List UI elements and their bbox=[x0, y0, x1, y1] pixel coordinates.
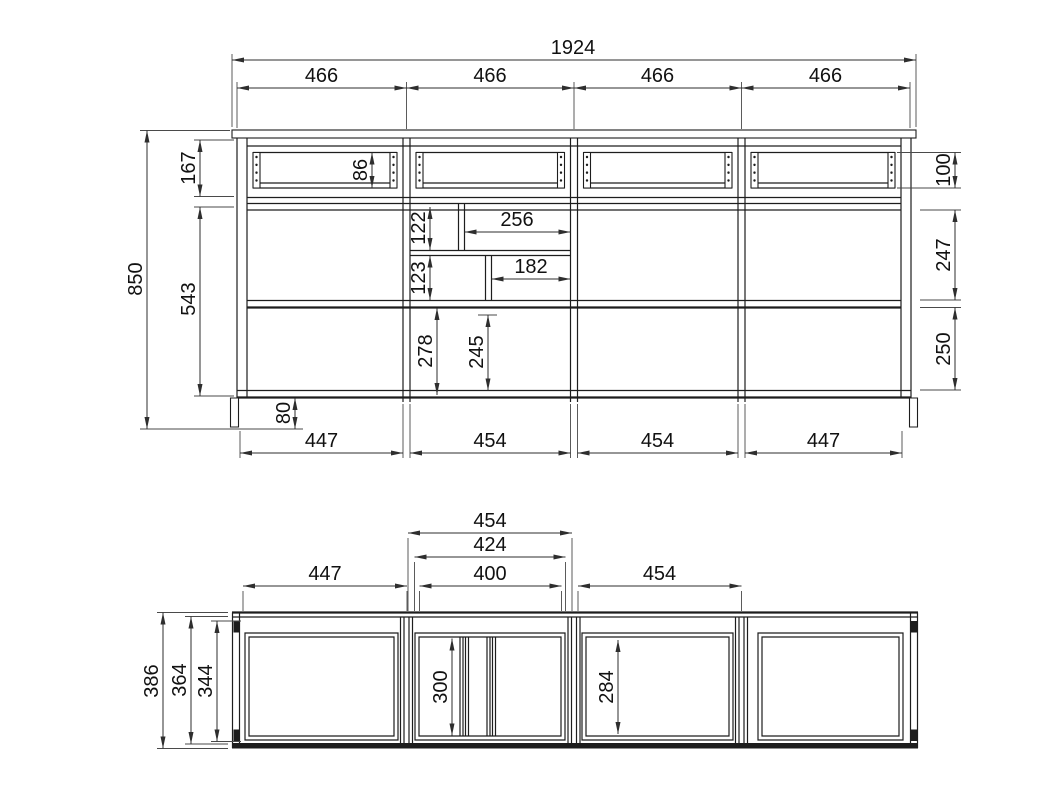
dim-label-niche-mid-width: 182 bbox=[514, 256, 547, 278]
dim-middle-compartment-height: 247 bbox=[920, 210, 961, 300]
dim-lower-niche-outer: 278 bbox=[415, 308, 437, 395]
dim-label-niche-top-height: 122 bbox=[408, 211, 430, 244]
dim-label-section-1: 466 bbox=[305, 65, 338, 87]
dim-label-module-width: 454 bbox=[473, 510, 506, 532]
dim-label-left-module-width: 447 bbox=[308, 563, 341, 585]
dim-label-drawer-depth-right: 284 bbox=[596, 670, 618, 703]
front-dimensions: 1924 466 466 466 466 850 1 bbox=[125, 37, 961, 458]
dim-niche-mid-width: 182 bbox=[492, 256, 571, 279]
dim-top-row-height: 167 bbox=[178, 140, 234, 197]
dim-label-frame-inner-width: 400 bbox=[473, 563, 506, 585]
dim-niche-mid-height: 123 bbox=[408, 256, 430, 301]
dim-label-niche-mid-height: 123 bbox=[408, 261, 430, 294]
front-view: 1924 466 466 466 466 850 1 bbox=[125, 37, 961, 458]
dim-niche-top-width: 256 bbox=[465, 209, 571, 232]
dim-label-drawer-depth-left: 300 bbox=[430, 670, 452, 703]
dim-frame-inner-width: 400 bbox=[420, 563, 562, 611]
dim-label-drawer-box-height: 86 bbox=[350, 159, 372, 181]
dim-label-bottom-4: 447 bbox=[807, 430, 840, 452]
cabinet-technical-drawing: 1924 466 466 466 466 850 1 bbox=[0, 0, 1061, 795]
dim-carcass-height: 543 bbox=[178, 207, 234, 396]
dim-label-top-row-height: 167 bbox=[178, 151, 200, 184]
technical-drawing-page: 1924 466 466 466 466 850 1 bbox=[0, 0, 1061, 795]
dim-left-module-width: 447 bbox=[243, 563, 407, 611]
dim-label-interior-depth: 344 bbox=[195, 664, 217, 697]
dim-lower-niche-inner: 245 bbox=[466, 315, 497, 391]
dim-label-bottom-3: 454 bbox=[641, 430, 674, 452]
dim-interior-depth: 344 bbox=[195, 621, 241, 742]
dim-label-carcass-depth: 364 bbox=[169, 663, 191, 696]
dim-label-overall-width: 1924 bbox=[551, 37, 596, 59]
plan-dimensions: 454 424 400 447 454 bbox=[141, 510, 742, 749]
dim-label-niche-top-width: 256 bbox=[500, 209, 533, 231]
dim-niche-top-height: 122 bbox=[408, 207, 430, 250]
dim-label-lower-niche-inner: 245 bbox=[466, 335, 488, 368]
legs bbox=[231, 398, 918, 427]
plan-corner-blocks bbox=[234, 621, 918, 741]
dim-label-lower-compartment: 250 bbox=[933, 332, 955, 365]
front-carcass bbox=[231, 130, 918, 427]
dim-overall-height: 850 bbox=[125, 131, 303, 430]
dim-label-drawer-front-height: 100 bbox=[933, 153, 955, 186]
top-panel bbox=[232, 130, 916, 138]
dim-label-section-2: 466 bbox=[473, 65, 506, 87]
dim-right-module-width: 454 bbox=[578, 563, 742, 611]
dim-bottom-widths: 447 454 454 447 bbox=[240, 404, 902, 458]
plan-front-edge bbox=[232, 743, 918, 749]
dim-label-bottom-1: 447 bbox=[305, 430, 338, 452]
dim-label-carcass-height: 543 bbox=[178, 282, 200, 315]
dim-drawer-depth-right: 284 bbox=[596, 640, 618, 734]
plan-box-outlines bbox=[245, 633, 903, 740]
dim-lower-compartment-height: 250 bbox=[920, 308, 961, 391]
shelf-lines-thick bbox=[237, 308, 911, 398]
dim-module-width: 454 bbox=[408, 510, 572, 611]
dim-label-overall-depth: 386 bbox=[141, 664, 163, 697]
dim-drawer-depth-left: 300 bbox=[430, 639, 452, 736]
dim-section-widths: 466 466 466 466 bbox=[237, 65, 910, 129]
plan-box-dividers bbox=[460, 637, 496, 736]
dim-label-overall-height: 850 bbox=[125, 262, 147, 295]
dim-label-bottom-2: 454 bbox=[473, 430, 506, 452]
dim-leg-height: 80 bbox=[273, 398, 295, 429]
dim-label-section-4: 466 bbox=[809, 65, 842, 87]
dim-label-frame-outer-width: 424 bbox=[473, 534, 506, 556]
dim-label-leg-height: 80 bbox=[273, 402, 295, 424]
dim-drawer-front-height: 100 bbox=[897, 153, 961, 189]
dim-label-middle-compartment: 247 bbox=[933, 238, 955, 271]
dim-label-right-module-width: 454 bbox=[643, 563, 676, 585]
carcass-lines bbox=[237, 138, 911, 402]
dim-label-section-3: 466 bbox=[641, 65, 674, 87]
plan-drawer-boxes bbox=[245, 633, 903, 740]
top-view: 454 424 400 447 454 bbox=[141, 510, 918, 749]
dim-label-lower-niche-outer: 278 bbox=[415, 334, 437, 367]
